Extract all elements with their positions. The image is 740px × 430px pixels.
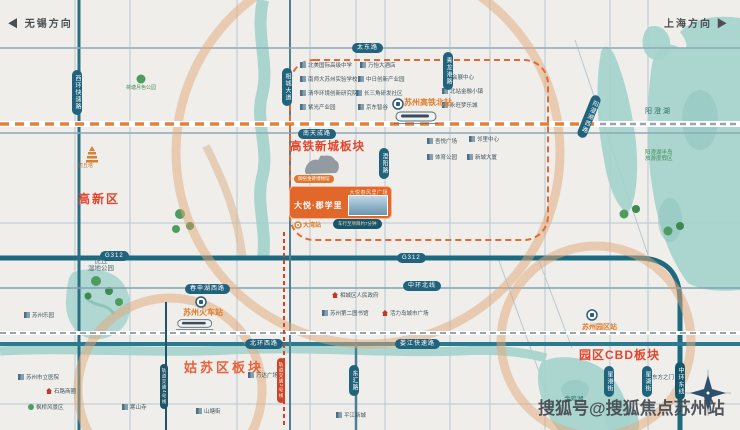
watermark: 搜狐号@搜狐焦点苏州站 [538, 394, 725, 419]
road-label-xinggang: 星港街 [604, 366, 614, 397]
district-sip-cbd: 园区CBD板块 [579, 349, 660, 362]
building-icon [300, 76, 306, 82]
poi: 石路商圈 [46, 387, 76, 395]
building-icon [300, 104, 306, 110]
road-label-donghui: 东汇路 [349, 365, 359, 396]
dawan-distance-note: 车行至项目约7分钟 [333, 219, 382, 229]
road-label-g312-east: G312 [397, 253, 426, 263]
pagoda-icon [86, 146, 98, 163]
project-name: 大悦·郡学里 [294, 200, 343, 211]
poi: 苏州第二图书馆 [322, 309, 369, 317]
yuanhetang-river [260, 0, 264, 258]
yangcheng-peninsula-label: 阳澄湖半岛 旅游度假区 [645, 150, 673, 162]
poi: 万达广场 [248, 371, 278, 379]
building-icon [358, 104, 364, 110]
project-box: 大悦春风里广场 大悦·郡学里 [289, 186, 392, 219]
road-label-beihuan-west: 北环西路 [245, 339, 283, 349]
building-icon [322, 310, 328, 316]
lake-yangcheng-label: 阳澄湖 [645, 108, 672, 116]
metro-line4-label: 轨道交通4号线 [160, 364, 168, 409]
poi: 万怡大酒店 [360, 61, 396, 69]
building-icon [358, 76, 364, 82]
building-icon [122, 404, 128, 410]
road-label-xihuan: 西环快速路 [72, 70, 82, 115]
road-label-g312-west: G312 [100, 251, 129, 261]
metro-line2-label: 轨道交通2号线 [277, 358, 285, 403]
poi: 中日创新产业园 [358, 75, 405, 83]
poi: 邻里中心 [469, 135, 499, 143]
landmark-icon [382, 310, 388, 316]
station-dawan: 大湾站 [303, 220, 321, 229]
building-icon [18, 374, 24, 380]
poi: 紫光产业园 [300, 103, 336, 111]
building-icon [427, 138, 433, 144]
building-icon [467, 154, 473, 160]
poi: 长三角研发社区 [356, 89, 403, 97]
station-hsr-north: 苏州高铁北站 [404, 97, 452, 108]
west-arrow-icon: ◀ [8, 19, 20, 30]
sip-station-roundel [587, 310, 597, 320]
poi: 南师大苏州实验学校 [300, 75, 358, 83]
road-label-nantiancheng: 南天成路 [298, 129, 336, 139]
building-icon [360, 62, 366, 68]
road-label-loujiang: 娄江快速路 [395, 339, 440, 349]
building-icon [427, 154, 433, 160]
district-gaoxin: 高新区 [78, 193, 120, 206]
road-label-zhonghuan-north: 中环北线 [403, 281, 441, 291]
building-icon [336, 412, 342, 418]
building-icon [300, 90, 306, 96]
landmark-icon [332, 292, 338, 298]
station-suzhou: 苏州火车站 [183, 307, 223, 318]
hsr-north-roundel [393, 99, 403, 109]
yuyao-museum-label: 御窑金砖博物馆 [294, 175, 334, 183]
road-label-chunshenhu-west: 春申湖西路 [185, 284, 230, 294]
suzhou-station-train-icon [176, 320, 213, 330]
poi: 苏州市立医院 [18, 373, 59, 381]
poi: 活力岛城市广场 [382, 309, 429, 317]
building-icon [469, 136, 475, 142]
poi: 山塘街 [196, 407, 221, 415]
suzhou-station-roundel [196, 297, 206, 307]
poi: 北美国际高级中学 [300, 61, 352, 69]
building-icon [356, 90, 362, 96]
road-label-xinghu: 星湖街 [642, 366, 652, 397]
building-icon [300, 62, 306, 68]
poi: 平江新城 [336, 411, 366, 419]
poi: 苏州乐园 [24, 311, 54, 319]
road-label-taidong: 太东路 [352, 43, 383, 53]
east-arrow-icon: ▶ [717, 19, 729, 30]
building-icon [24, 312, 30, 318]
huqiu-tower-label: 虎丘塔 [78, 164, 93, 170]
road-label-qinglonggang: 青龙港路 [443, 52, 453, 90]
shanghai-direction: 上海方向 ▶ [664, 19, 729, 30]
suzhou-location-map: ◀ 无锡方向 上海方向 ▶ 高新区 高铁新城板块 姑苏区板块 园区CBD板块 太… [0, 0, 740, 430]
building-icon [248, 372, 254, 378]
wuxi-direction: ◀ 无锡方向 [8, 19, 73, 30]
road-label-chengyang: 澄阳路 [379, 148, 389, 179]
station-sip: 苏州园区站 [582, 322, 617, 332]
poi: 枫桥风景区 [28, 403, 64, 411]
hetang-park-label: 荷塘月色公园 [126, 86, 156, 92]
poi: 体育公园 [427, 153, 457, 161]
landmark-icon [46, 388, 52, 394]
poi: 新城大厦 [467, 153, 497, 161]
dawan-station-dot [295, 222, 301, 228]
poi-government: 相城区人民政府 [332, 291, 379, 299]
project-photo [348, 195, 388, 216]
poi: 京东智谷 [358, 103, 388, 111]
poi: 吾悦广场 [427, 137, 457, 145]
tree-icon [28, 404, 34, 410]
road-label-xiangcheng-avenue: 相城大道 [282, 68, 292, 106]
district-hsr-newtown: 高铁新城板块 [290, 141, 365, 154]
poi: 寒山寺 [122, 403, 147, 411]
poi: 清华环境创新研究院 [300, 89, 358, 97]
building-icon [196, 408, 202, 414]
